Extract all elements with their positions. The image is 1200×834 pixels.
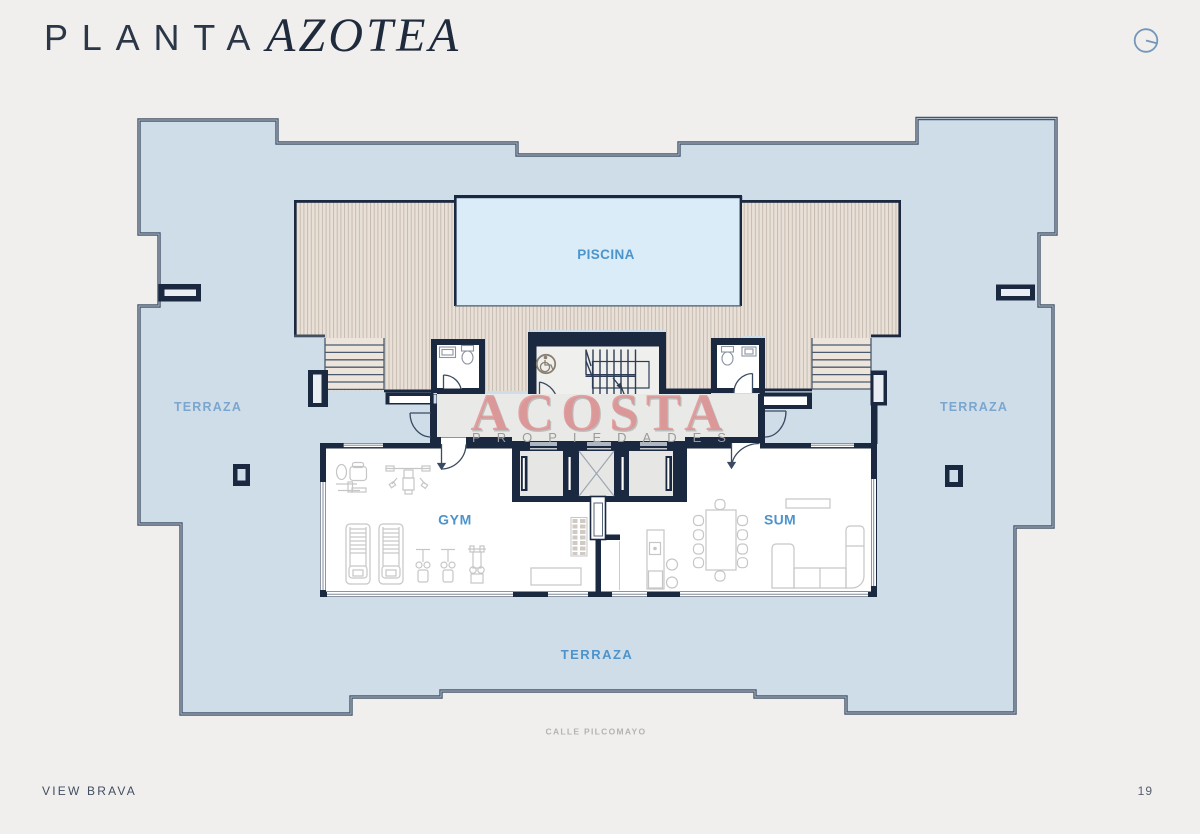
svg-text:PROPIEDADES: PROPIEDADES <box>472 430 742 445</box>
svg-text:TERRAZA: TERRAZA <box>940 400 1008 414</box>
svg-text:PISCINA: PISCINA <box>577 247 635 262</box>
svg-text:TERRAZA: TERRAZA <box>561 647 634 662</box>
svg-text:19: 19 <box>1138 784 1153 798</box>
svg-text:PLANTA: PLANTA <box>44 17 264 58</box>
svg-text:CALLE PILCOMAYO: CALLE PILCOMAYO <box>546 727 647 737</box>
svg-text:AZOTEA: AZOTEA <box>263 9 461 62</box>
svg-text:TERRAZA: TERRAZA <box>174 400 242 414</box>
svg-text:VIEW BRAVA: VIEW BRAVA <box>42 784 137 798</box>
svg-text:SUM: SUM <box>764 512 796 528</box>
svg-text:GYM: GYM <box>438 512 472 528</box>
